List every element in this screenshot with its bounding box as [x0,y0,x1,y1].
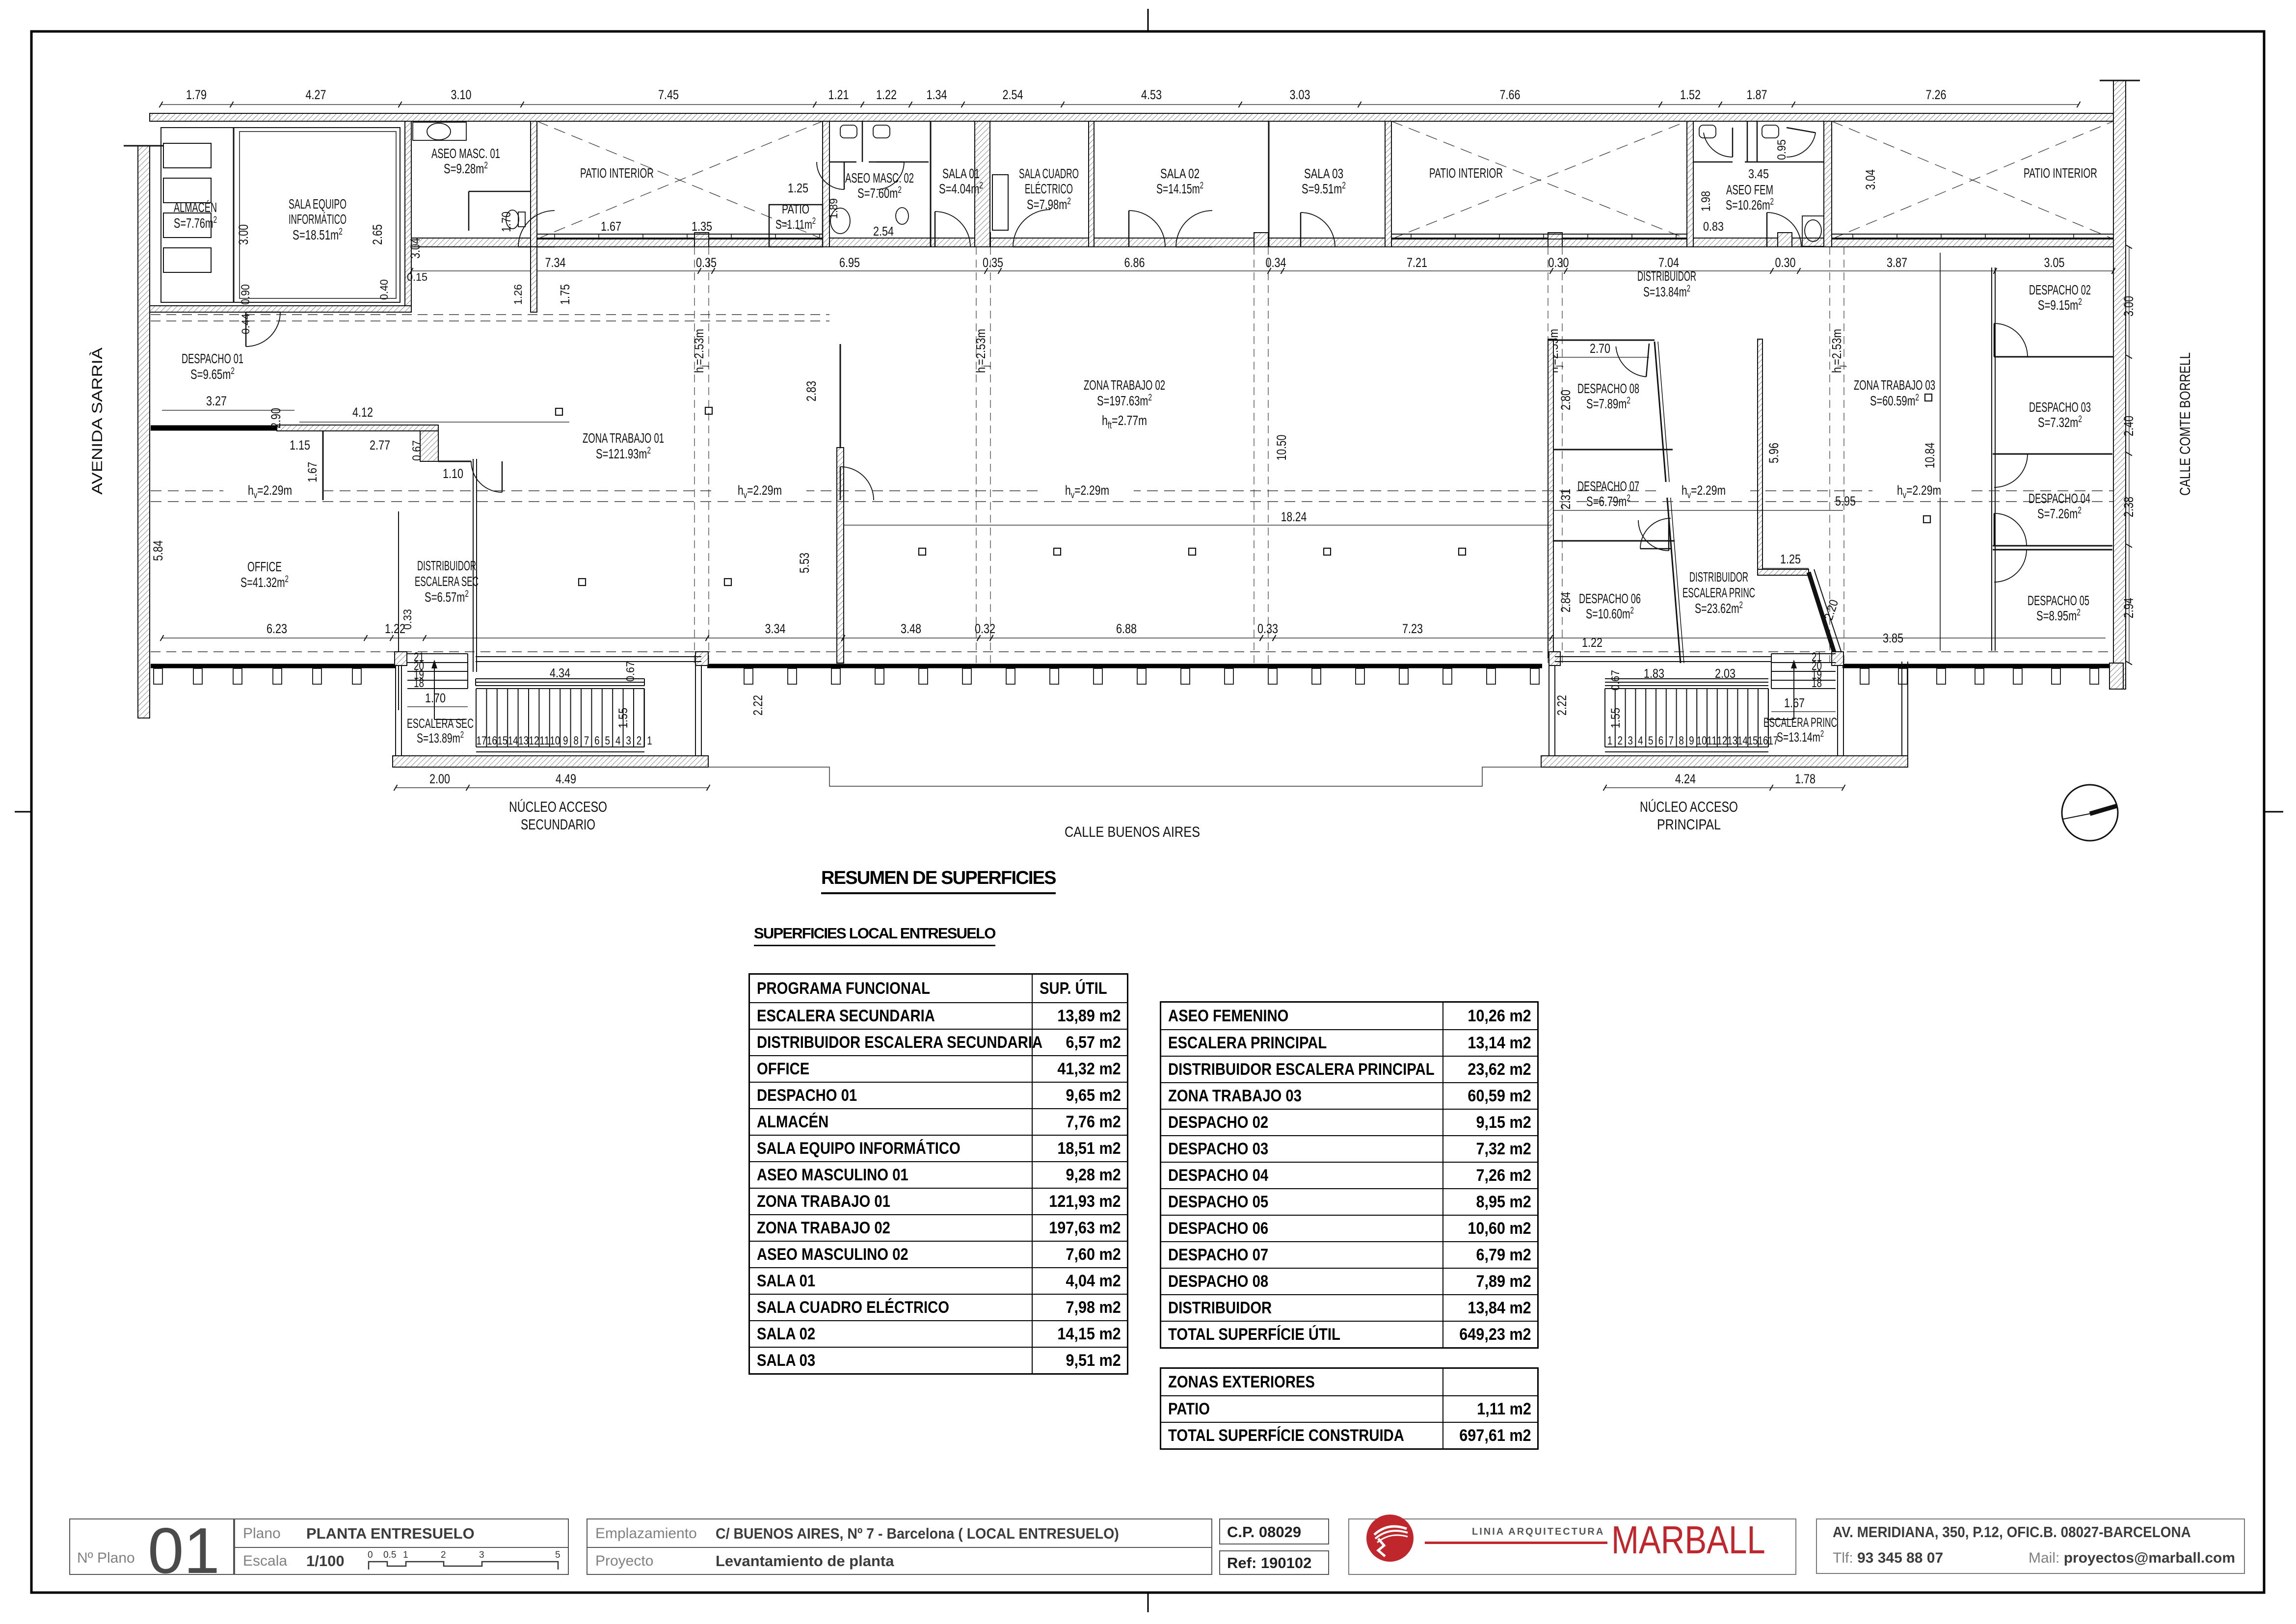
svg-text:ESCALERA PRINC: ESCALERA PRINC [1763,715,1837,730]
svg-text:6.23: 6.23 [267,621,287,636]
svg-text:1: 1 [647,734,652,747]
svg-text:18.24: 18.24 [1281,509,1307,524]
svg-text:S=7.60m2: S=7.60m2 [857,185,902,201]
svg-text:1.67: 1.67 [601,219,621,234]
svg-text:DESPACHO 07: DESPACHO 07 [1577,479,1639,494]
svg-text:9: 9 [563,734,568,747]
svg-text:1.25: 1.25 [1780,552,1801,566]
svg-text:2.80: 2.80 [1558,390,1573,410]
svg-text:4.49: 4.49 [556,772,576,786]
svg-text:6.95: 6.95 [839,255,860,270]
svg-text:S=10.26m2: S=10.26m2 [1726,197,1774,213]
svg-text:1.10: 1.10 [443,466,463,481]
svg-text:0.5: 0.5 [383,1550,396,1560]
svg-text:SALA 03: SALA 03 [1304,166,1343,181]
svg-text:S=41.32m2: S=41.32m2 [240,574,289,590]
svg-text:2.90: 2.90 [268,408,283,428]
svg-text:PATIO INTERIOR: PATIO INTERIOR [580,165,654,181]
svg-text:S=4.04m2: S=4.04m2 [939,181,983,196]
svg-text:3: 3 [479,1550,484,1560]
svg-text:3: 3 [626,734,631,747]
svg-text:S=13.84m2: S=13.84m2 [1643,284,1690,299]
svg-text:3.10: 3.10 [451,87,472,102]
svg-text:0: 0 [368,1550,373,1560]
svg-text:1.87: 1.87 [1747,87,1767,102]
svg-text:ASEO FEM: ASEO FEM [1726,182,1773,197]
svg-text:1.79: 1.79 [186,87,207,102]
svg-text:16: 16 [487,734,497,747]
svg-text:6: 6 [594,734,600,747]
svg-text:7.66: 7.66 [1500,87,1521,102]
svg-text:7: 7 [584,734,589,747]
svg-text:17: 17 [477,734,487,747]
svg-text:11: 11 [539,734,550,747]
svg-text:0.30: 0.30 [1548,255,1569,270]
svg-text:1.25: 1.25 [788,181,808,195]
svg-text:1.67: 1.67 [306,462,320,482]
svg-text:ZONA TRABAJO 02: ZONA TRABAJO 02 [1084,377,1165,393]
svg-text:0.35: 0.35 [696,255,717,270]
svg-text:2.00: 2.00 [429,772,450,786]
svg-text:2.22: 2.22 [1554,695,1569,716]
svg-text:DESPACHO 02: DESPACHO 02 [2029,282,2091,297]
svg-text:AVENIDA SARRIÀ: AVENIDA SARRIÀ [89,347,106,495]
svg-text:8: 8 [573,734,579,747]
svg-text:11: 11 [1707,734,1717,747]
svg-text:4.53: 4.53 [1141,87,1162,102]
svg-text:18: 18 [1812,676,1822,690]
svg-text:PATIO: PATIO [782,202,809,216]
svg-text:13: 13 [518,734,529,747]
svg-text:1.75: 1.75 [558,284,572,305]
svg-text:13: 13 [1727,734,1737,747]
svg-text:S=23.62m2: S=23.62m2 [1695,600,1743,616]
svg-text:DISTRIBUIDOR: DISTRIBUIDOR [1689,569,1748,585]
svg-text:10: 10 [1697,734,1707,747]
svg-text:15: 15 [497,734,507,747]
svg-text:ZONA TRABAJO 01: ZONA TRABAJO 01 [583,430,664,446]
svg-text:ASEO MASC. 02: ASEO MASC. 02 [845,170,914,186]
svg-text:2.31: 2.31 [1558,489,1573,509]
svg-text:3.85: 3.85 [1883,631,1903,645]
svg-text:1.83: 1.83 [1644,666,1664,681]
svg-text:5.96: 5.96 [1766,443,1781,463]
svg-text:7.23: 7.23 [1402,621,1423,636]
svg-text:7: 7 [1669,734,1674,747]
svg-text:2.77: 2.77 [370,438,390,453]
svg-text:NÚCLEO ACCESO: NÚCLEO ACCESO [1640,799,1738,815]
svg-text:DISTRIBUIDOR: DISTRIBUIDOR [417,558,476,573]
svg-text:1: 1 [403,1550,408,1560]
svg-text:6.88: 6.88 [1116,621,1137,636]
svg-text:SALA CUADRO: SALA CUADRO [1019,166,1079,181]
svg-text:DESPACHO 03: DESPACHO 03 [2029,399,2091,415]
svg-text:0.44: 0.44 [240,314,252,334]
svg-text:4: 4 [1638,734,1643,747]
svg-text:S=9.51m2: S=9.51m2 [1302,181,1346,196]
svg-text:1.67: 1.67 [1784,695,1805,710]
svg-text:3.04: 3.04 [1863,169,1878,190]
svg-text:5: 5 [1648,734,1654,747]
svg-text:1.15: 1.15 [290,438,310,453]
svg-text:OFFICE: OFFICE [247,559,282,574]
svg-text:SALA EQUIPO: SALA EQUIPO [289,196,347,212]
svg-text:18: 18 [414,676,424,690]
svg-text:1.78: 1.78 [1795,772,1815,786]
svg-text:5: 5 [605,734,611,747]
svg-text:2.54: 2.54 [873,224,894,239]
svg-text:15: 15 [1748,734,1758,747]
svg-text:S=7.89m2: S=7.89m2 [1586,396,1630,411]
svg-text:0.32: 0.32 [975,621,995,636]
svg-text:7.45: 7.45 [658,87,679,102]
svg-text:9: 9 [1689,734,1694,747]
svg-text:S=13.89m2: S=13.89m2 [417,730,464,745]
svg-text:1: 1 [1607,734,1613,747]
svg-text:S=9.28m2: S=9.28m2 [444,160,488,176]
svg-text:CALLE COMTE BORRELL: CALLE COMTE BORRELL [2177,352,2193,496]
svg-text:1.35: 1.35 [692,219,712,234]
svg-text:10: 10 [550,734,560,747]
svg-text:10.84: 10.84 [1922,443,1937,469]
svg-text:3: 3 [1628,734,1633,747]
svg-text:7.21: 7.21 [1407,255,1427,270]
svg-text:ESCALERA PRINC: ESCALERA PRINC [1682,585,1755,600]
svg-text:5.84: 5.84 [151,540,165,561]
svg-text:S=121.93m2: S=121.93m2 [596,446,651,461]
svg-text:PATIO INTERIOR: PATIO INTERIOR [2024,165,2097,181]
svg-text:3.00: 3.00 [236,224,251,245]
svg-text:2.54: 2.54 [1003,87,1023,102]
svg-text:2.22: 2.22 [750,695,765,716]
svg-text:S=7.26m2: S=7.26m2 [2037,506,2082,521]
svg-text:3.27: 3.27 [206,394,227,408]
svg-text:16: 16 [1758,734,1768,747]
svg-text:1.98: 1.98 [1699,191,1713,212]
svg-text:1.21: 1.21 [828,87,849,102]
svg-text:ELÉCTRICO: ELÉCTRICO [1025,181,1073,196]
svg-text:3.34: 3.34 [765,621,786,636]
svg-text:3.00: 3.00 [2121,296,2136,317]
svg-text:2.40: 2.40 [2121,416,2136,436]
svg-text:1.89: 1.89 [827,198,840,219]
svg-text:PATIO INTERIOR: PATIO INTERIOR [1429,165,1503,181]
svg-text:DESPACHO 08: DESPACHO 08 [1577,381,1639,396]
svg-text:INFORMÁTICO: INFORMÁTICO [289,212,347,227]
svg-text:DESPACHO 01: DESPACHO 01 [182,351,243,366]
svg-text:6: 6 [1658,734,1664,747]
svg-text:12: 12 [529,734,539,747]
svg-text:4.34: 4.34 [550,666,570,680]
svg-text:3.04: 3.04 [408,238,423,259]
svg-text:S=14.15m2: S=14.15m2 [1156,181,1203,196]
svg-text:4: 4 [615,734,621,747]
svg-text:7.34: 7.34 [545,255,566,270]
svg-text:DESPACHO 06: DESPACHO 06 [1579,591,1641,606]
svg-text:1.22: 1.22 [1582,635,1602,650]
svg-text:S=7.98m2: S=7.98m2 [1027,196,1071,212]
svg-text:3.48: 3.48 [901,621,921,636]
svg-text:0.67: 0.67 [1609,670,1622,691]
svg-text:8: 8 [1679,734,1684,747]
svg-text:5: 5 [555,1550,561,1560]
svg-text:3.87: 3.87 [1887,255,1907,270]
svg-text:1.22: 1.22 [876,87,897,102]
svg-text:0.33: 0.33 [1257,621,1278,636]
svg-text:3.45: 3.45 [1748,166,1769,181]
svg-text:0.90: 0.90 [239,284,252,305]
svg-text:6.86: 6.86 [1124,255,1145,270]
svg-text:2: 2 [1618,734,1623,747]
svg-text:4.27: 4.27 [306,87,326,102]
svg-text:2.38: 2.38 [2121,497,2136,517]
svg-text:0.34: 0.34 [1266,255,1286,270]
svg-text:NÚCLEO ACCESO: NÚCLEO ACCESO [509,799,607,815]
svg-text:5.95: 5.95 [1835,494,1856,508]
svg-text:1.70: 1.70 [500,212,513,232]
svg-text:S=1.11m2: S=1.11m2 [775,216,816,232]
svg-text:S=8.95m2: S=8.95m2 [2036,608,2081,623]
svg-text:2.94: 2.94 [2121,598,2136,618]
svg-text:ESCALERA SEC: ESCALERA SEC [415,574,479,589]
svg-text:0.30: 0.30 [1775,255,1796,270]
svg-text:PRINCIPAL: PRINCIPAL [1657,817,1721,833]
svg-text:7.04: 7.04 [1658,255,1679,270]
svg-text:10.50: 10.50 [1274,435,1289,461]
svg-text:1.55: 1.55 [616,708,630,728]
svg-text:S=9.65m2: S=9.65m2 [190,366,235,382]
svg-text:2: 2 [441,1550,446,1560]
svg-text:SALA 01: SALA 01 [942,166,980,181]
svg-text:ALMACÉN: ALMACÉN [174,200,217,215]
svg-text:DESPACHO 04: DESPACHO 04 [2029,491,2090,506]
svg-text:0.15: 0.15 [407,271,427,283]
svg-text:S=6.79m2: S=6.79m2 [1586,493,1630,509]
svg-text:0.83: 0.83 [1703,220,1724,234]
svg-text:2.83: 2.83 [804,381,819,401]
svg-text:12: 12 [1717,734,1727,747]
svg-text:CALLE BUENOS AIRES: CALLE BUENOS AIRES [1065,824,1200,840]
svg-text:SECUNDARIO: SECUNDARIO [521,817,595,833]
svg-text:ZONA TRABAJO 03: ZONA TRABAJO 03 [1854,377,1935,393]
svg-text:1.55: 1.55 [1609,708,1623,728]
svg-text:S=7.76m2: S=7.76m2 [174,215,217,231]
svg-text:S=6.57m2: S=6.57m2 [425,589,469,605]
svg-text:S=18.51m2: S=18.51m2 [293,227,343,242]
svg-text:1.52: 1.52 [1680,87,1701,102]
svg-text:2.84: 2.84 [1558,592,1573,612]
svg-text:2: 2 [637,734,642,747]
svg-text:4.24: 4.24 [1675,772,1696,786]
svg-text:S=13.14m2: S=13.14m2 [1777,729,1824,745]
svg-text:7.26: 7.26 [1926,87,1947,102]
svg-text:S=60.59m2: S=60.59m2 [1870,393,1919,408]
svg-text:0.67: 0.67 [624,661,637,682]
svg-text:3.05: 3.05 [2044,255,2065,270]
svg-text:ESCALERA SEC: ESCALERA SEC [407,716,474,731]
svg-text:0.67: 0.67 [410,440,424,461]
svg-text:S=10.60m2: S=10.60m2 [1586,606,1634,621]
svg-text:ASEO MASC. 01: ASEO MASC. 01 [431,146,500,161]
svg-text:4.12: 4.12 [352,405,373,420]
svg-text:1.70: 1.70 [425,691,446,705]
svg-text:SALA 02: SALA 02 [1160,166,1200,181]
svg-text:1.26: 1.26 [512,284,524,305]
svg-text:S=7.32m2: S=7.32m2 [2038,414,2082,430]
svg-text:3.03: 3.03 [1290,87,1310,102]
svg-text:S=197.63m2: S=197.63m2 [1097,393,1152,408]
svg-text:S=9.15m2: S=9.15m2 [2038,297,2082,313]
svg-text:0.35: 0.35 [983,255,1003,270]
svg-text:5.53: 5.53 [797,553,812,573]
svg-text:2.70: 2.70 [1590,341,1610,356]
svg-text:2.65: 2.65 [370,224,385,245]
svg-text:1.34: 1.34 [927,87,947,102]
svg-text:DESPACHO 05: DESPACHO 05 [2028,593,2089,608]
svg-text:0.95: 0.95 [1775,139,1789,160]
svg-text:0.33: 0.33 [401,609,414,630]
svg-text:14: 14 [508,734,518,747]
svg-text:14: 14 [1737,734,1748,747]
svg-text:0.40: 0.40 [378,279,390,300]
svg-text:2.03: 2.03 [1715,666,1735,681]
